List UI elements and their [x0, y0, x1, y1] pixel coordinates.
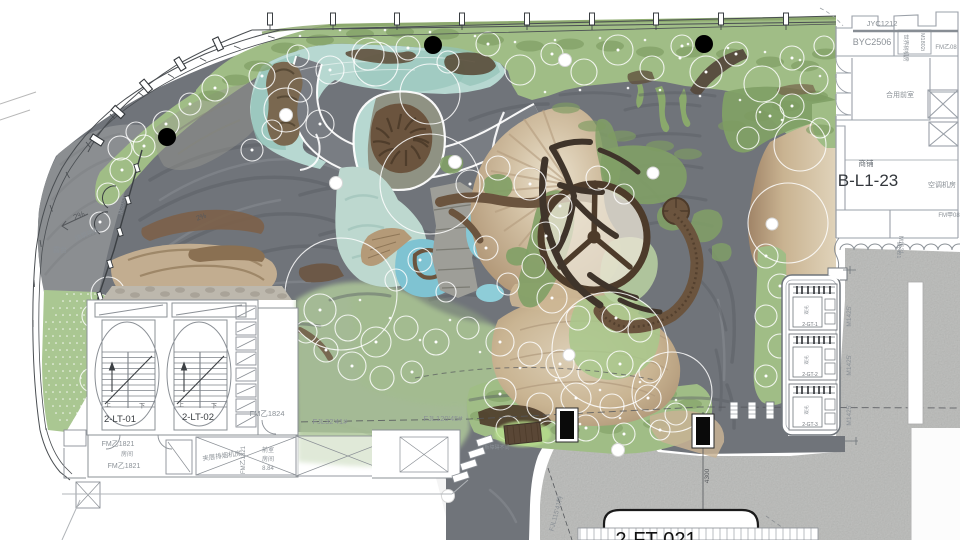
svg-text:FM乙1824: FM乙1824 [249, 409, 284, 418]
svg-text:观光: 观光 [803, 405, 810, 414]
svg-text:露台: 露台 [53, 245, 67, 254]
svg-text:FM乙1821: FM乙1821 [108, 462, 141, 470]
svg-text:M1421: M1421 [895, 242, 901, 259]
svg-text:4300: 4300 [704, 468, 711, 483]
svg-text:FM甲08: FM甲08 [938, 212, 960, 219]
svg-text:2-GT-1: 2-GT-1 [802, 322, 818, 328]
svg-text:观光: 观光 [803, 355, 810, 364]
svg-text:观光: 观光 [803, 305, 810, 314]
svg-text:M1425': M1425' [846, 404, 853, 425]
svg-text:房间: 房间 [121, 450, 133, 458]
svg-text:FJL120'45#: FJL120'45# [424, 414, 464, 423]
svg-text:FM乙1821: FM乙1821 [240, 445, 247, 474]
svg-text:下: 下 [211, 403, 217, 410]
svg-text:上: 上 [178, 401, 184, 409]
svg-text:商铺: 商铺 [859, 158, 874, 168]
svg-text:空调机房: 空调机房 [928, 180, 956, 189]
svg-text:2-GT-2: 2-GT-2 [802, 372, 818, 378]
svg-text:前室: 前室 [262, 446, 274, 454]
svg-text:2-GT-3: 2-GT-3 [802, 422, 818, 428]
svg-text:M1425': M1425' [846, 305, 853, 326]
svg-text:房间: 房间 [262, 455, 274, 463]
svg-text:2-LT-01: 2-LT-01 [104, 414, 136, 425]
svg-text:FM乙08: FM乙08 [935, 44, 957, 51]
svg-text:M1425': M1425' [846, 354, 853, 375]
svg-text:JYC1212: JYC1212 [867, 19, 898, 28]
svg-text:8.84: 8.84 [262, 466, 274, 472]
svg-text:上: 上 [105, 401, 111, 409]
svg-text:B-L1-23: B-L1-23 [838, 171, 898, 190]
svg-text:FM乙1821: FM乙1821 [102, 440, 135, 448]
svg-text:BYC2506: BYC2506 [853, 37, 892, 47]
svg-text:世界树机房: 世界树机房 [902, 34, 910, 62]
svg-text:2-FT-021: 2-FT-021 [615, 529, 696, 540]
svg-text:M1802i: M1802i [919, 33, 925, 51]
svg-text:下: 下 [139, 403, 145, 410]
svg-text:板障碍不同: 板障碍不同 [484, 444, 509, 451]
svg-text:FJL32'41#: FJL32'41# [313, 417, 349, 426]
svg-text:2-LT-02: 2-LT-02 [182, 412, 214, 423]
svg-text:合用前室: 合用前室 [886, 90, 914, 99]
